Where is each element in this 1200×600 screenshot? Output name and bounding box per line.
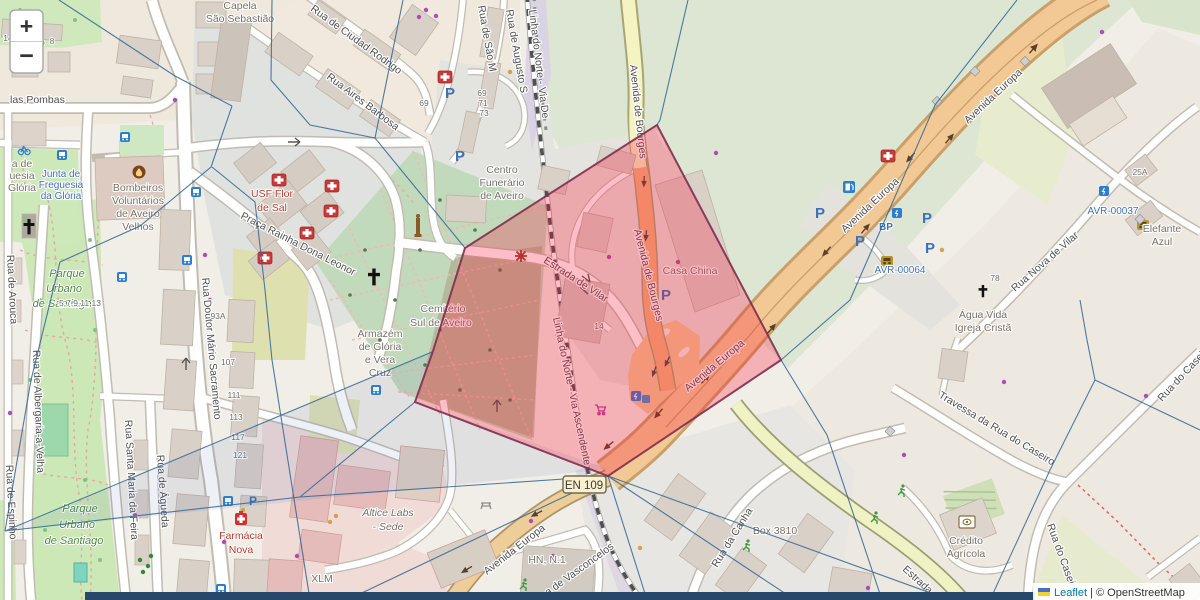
svg-text:Crédito: Crédito	[949, 535, 983, 547]
svg-text:Bombeiros: Bombeiros	[113, 182, 163, 194]
svg-text:69: 69	[477, 88, 487, 98]
svg-text:Agrícola: Agrícola	[947, 548, 986, 560]
svg-text:de Santiago: de Santiago	[45, 535, 104, 547]
svg-text:73: 73	[479, 108, 489, 118]
svg-text:Altice Labs: Altice Labs	[361, 507, 414, 519]
svg-text:a de: a de	[12, 158, 33, 170]
svg-text:Parque: Parque	[49, 268, 84, 280]
svg-text:P: P	[815, 205, 825, 222]
svg-text:Freguesia: Freguesia	[39, 180, 84, 191]
svg-text:Leaflet | © OpenStreetMap: Leaflet | © OpenStreetMap	[1054, 587, 1185, 599]
svg-text:Água Vida: Água Vida	[959, 308, 1007, 321]
svg-text:de Aveiro: de Aveiro	[480, 190, 524, 202]
svg-text:Glória: Glória	[8, 182, 36, 194]
svg-text:Voluntários: Voluntários	[112, 195, 164, 207]
svg-text:P: P	[925, 240, 935, 257]
svg-text:✝: ✝	[21, 217, 38, 239]
svg-text:uesia: uesia	[9, 170, 34, 182]
svg-text:P: P	[855, 233, 865, 250]
svg-text:P: P	[445, 85, 455, 102]
svg-text:USF Flor: USF Flor	[251, 188, 294, 200]
svg-text:Funerário: Funerário	[480, 177, 525, 189]
svg-text:8: 8	[50, 36, 55, 46]
svg-text:111: 111	[228, 390, 241, 400]
svg-text:107: 107	[221, 357, 235, 367]
svg-text:Nova: Nova	[229, 544, 254, 556]
svg-text:93A: 93A	[210, 311, 225, 321]
svg-text:EN 109: EN 109	[565, 480, 603, 492]
svg-text:Elefante: Elefante	[1143, 223, 1182, 235]
svg-text:✝: ✝	[976, 284, 989, 301]
svg-text:P: P	[455, 148, 465, 165]
svg-text:las Pombas: las Pombas	[10, 94, 65, 106]
svg-text:−: −	[19, 42, 34, 70]
svg-text:5,7,9,11,13: 5,7,9,11,13	[59, 298, 101, 308]
svg-text:AVR-00037: AVR-00037	[1088, 206, 1139, 217]
svg-text:de Glória: de Glória	[359, 341, 402, 353]
svg-text:Igreja Cristã: Igreja Cristã	[955, 322, 1012, 334]
svg-text:✝: ✝	[365, 265, 383, 290]
svg-text:Capela: Capela	[223, 0, 256, 12]
svg-text:25A: 25A	[1132, 167, 1147, 177]
svg-text:HN, N:1: HN, N:1	[528, 554, 566, 566]
svg-text:e Vera: e Vera	[365, 354, 396, 366]
svg-text:de Sal: de Sal	[257, 202, 287, 214]
svg-text:Farmácia: Farmácia	[219, 530, 263, 542]
svg-text:Junta de: Junta de	[42, 169, 81, 180]
svg-text:P: P	[922, 210, 932, 227]
svg-text:71: 71	[478, 98, 488, 108]
svg-text:São Sebastião: São Sebastião	[206, 13, 274, 25]
svg-text:Urbano: Urbano	[46, 283, 82, 295]
svg-text:XLM: XLM	[311, 573, 333, 585]
svg-text:78: 78	[990, 273, 1000, 283]
svg-text:Azul: Azul	[1152, 236, 1172, 248]
svg-text:- Sede: - Sede	[373, 521, 404, 533]
svg-text:da Glória: da Glória	[41, 191, 82, 202]
svg-text:113: 113	[229, 412, 243, 422]
svg-text:de Aveiro: de Aveiro	[116, 208, 160, 220]
svg-text:Armazém: Armazém	[358, 328, 403, 340]
svg-text:AVR-00064: AVR-00064	[875, 265, 926, 276]
svg-text:+: +	[20, 13, 33, 39]
svg-text:69: 69	[419, 98, 429, 108]
svg-text:Centro: Centro	[486, 164, 518, 176]
